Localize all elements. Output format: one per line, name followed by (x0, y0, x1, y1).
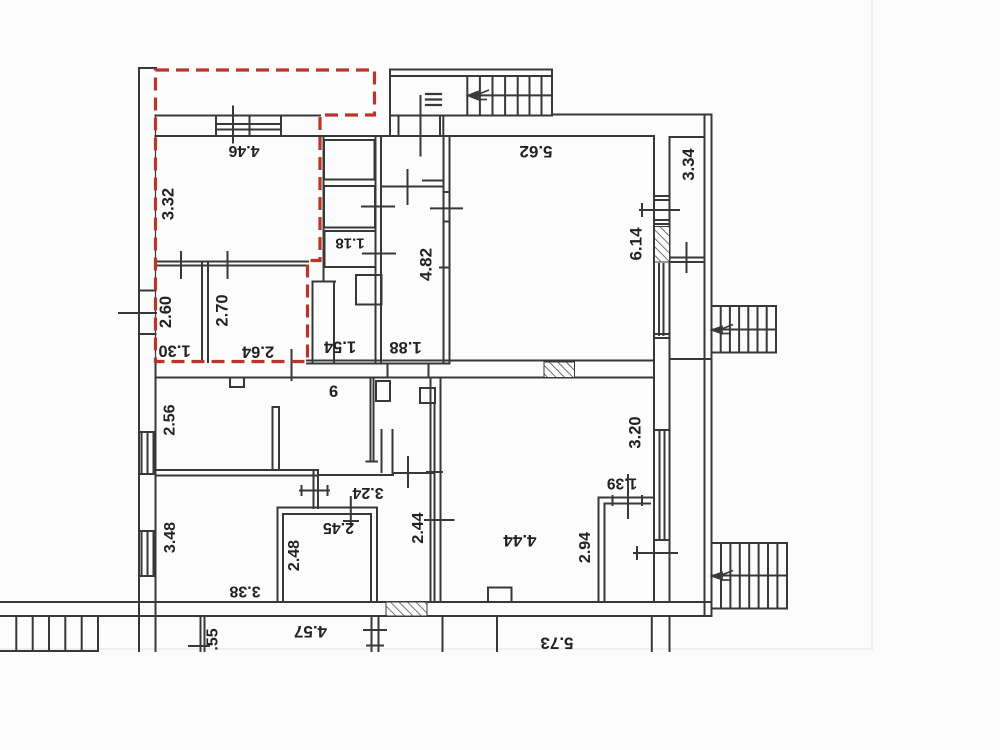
svg-text:2.64: 2.64 (241, 343, 274, 361)
svg-text:3.24: 3.24 (352, 484, 383, 501)
svg-text:6.14: 6.14 (627, 227, 646, 261)
svg-text:1.54: 1.54 (323, 338, 356, 356)
svg-text:9: 9 (329, 382, 338, 400)
svg-text:3.32: 3.32 (160, 188, 178, 220)
svg-text:2.44: 2.44 (410, 512, 427, 543)
svg-text:4.44: 4.44 (503, 531, 537, 550)
svg-text:2.48: 2.48 (286, 540, 303, 571)
svg-text:1.39: 1.39 (607, 475, 638, 492)
svg-text:2.56: 2.56 (162, 404, 179, 435)
svg-text:5.73: 5.73 (540, 634, 573, 653)
svg-text:1.30: 1.30 (158, 342, 190, 360)
svg-text:3.20: 3.20 (627, 416, 645, 448)
svg-text:2.60: 2.60 (157, 296, 175, 328)
svg-text:4.46: 4.46 (228, 142, 259, 159)
svg-text:4.57: 4.57 (294, 622, 327, 641)
svg-text:.55: .55 (205, 628, 222, 650)
svg-text:1.18: 1.18 (335, 235, 364, 252)
svg-text:2.45: 2.45 (323, 519, 354, 536)
svg-text:3.38: 3.38 (229, 583, 260, 600)
svg-text:3.34: 3.34 (680, 148, 698, 181)
svg-text:3.48: 3.48 (162, 522, 179, 553)
svg-text:2.70: 2.70 (214, 294, 232, 326)
svg-text:2.94: 2.94 (577, 532, 594, 563)
svg-text:4.82: 4.82 (417, 248, 436, 281)
svg-text:5.62: 5.62 (519, 142, 552, 161)
svg-text:1.88: 1.88 (389, 338, 421, 356)
